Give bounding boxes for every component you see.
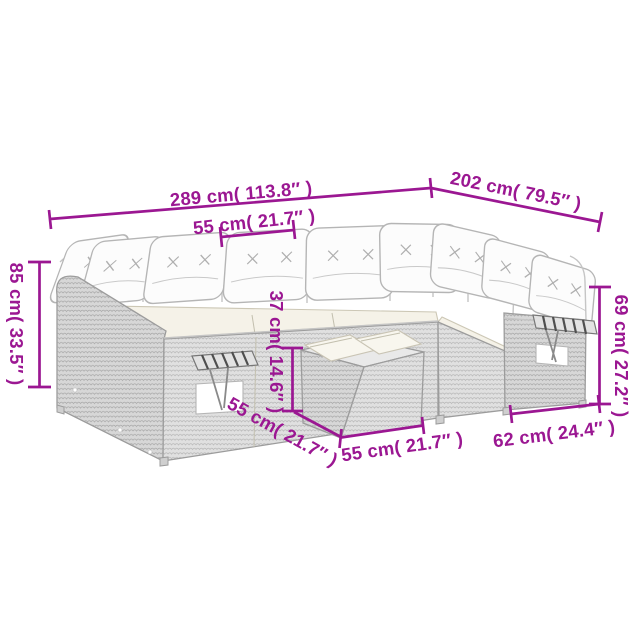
left-arm-panel xyxy=(57,276,166,461)
dim-label-side-depth: 202 cm( 79.5″ ) xyxy=(449,167,584,214)
dim-label-overall-length: 289 cm( 113.8″ ) xyxy=(169,177,313,210)
dim-side-depth-202: 202 cm( 79.5″ ) xyxy=(431,167,602,232)
sofa-dimension-illustration: 289 cm( 113.8″ ) 202 cm( 79.5″ ) 55 cm( … xyxy=(0,0,640,640)
dim-back-height-85: 85 cm( 33.5″ ) xyxy=(6,262,51,387)
footstool-table xyxy=(301,330,424,438)
dim-arm-height-69: 69 cm( 27.2″ ) xyxy=(589,287,632,417)
dim-label-back-height: 85 cm( 33.5″ ) xyxy=(6,263,27,386)
dim-label-arm-height: 69 cm( 27.2″ ) xyxy=(611,295,632,418)
back-cushion xyxy=(142,232,231,304)
diagram-canvas: 289 cm( 113.8″ ) 202 cm( 79.5″ ) 55 cm( … xyxy=(0,0,640,640)
right-seat-base xyxy=(438,322,505,418)
dim-label-table-height: 37 cm( 14.6″ ) xyxy=(266,291,287,414)
